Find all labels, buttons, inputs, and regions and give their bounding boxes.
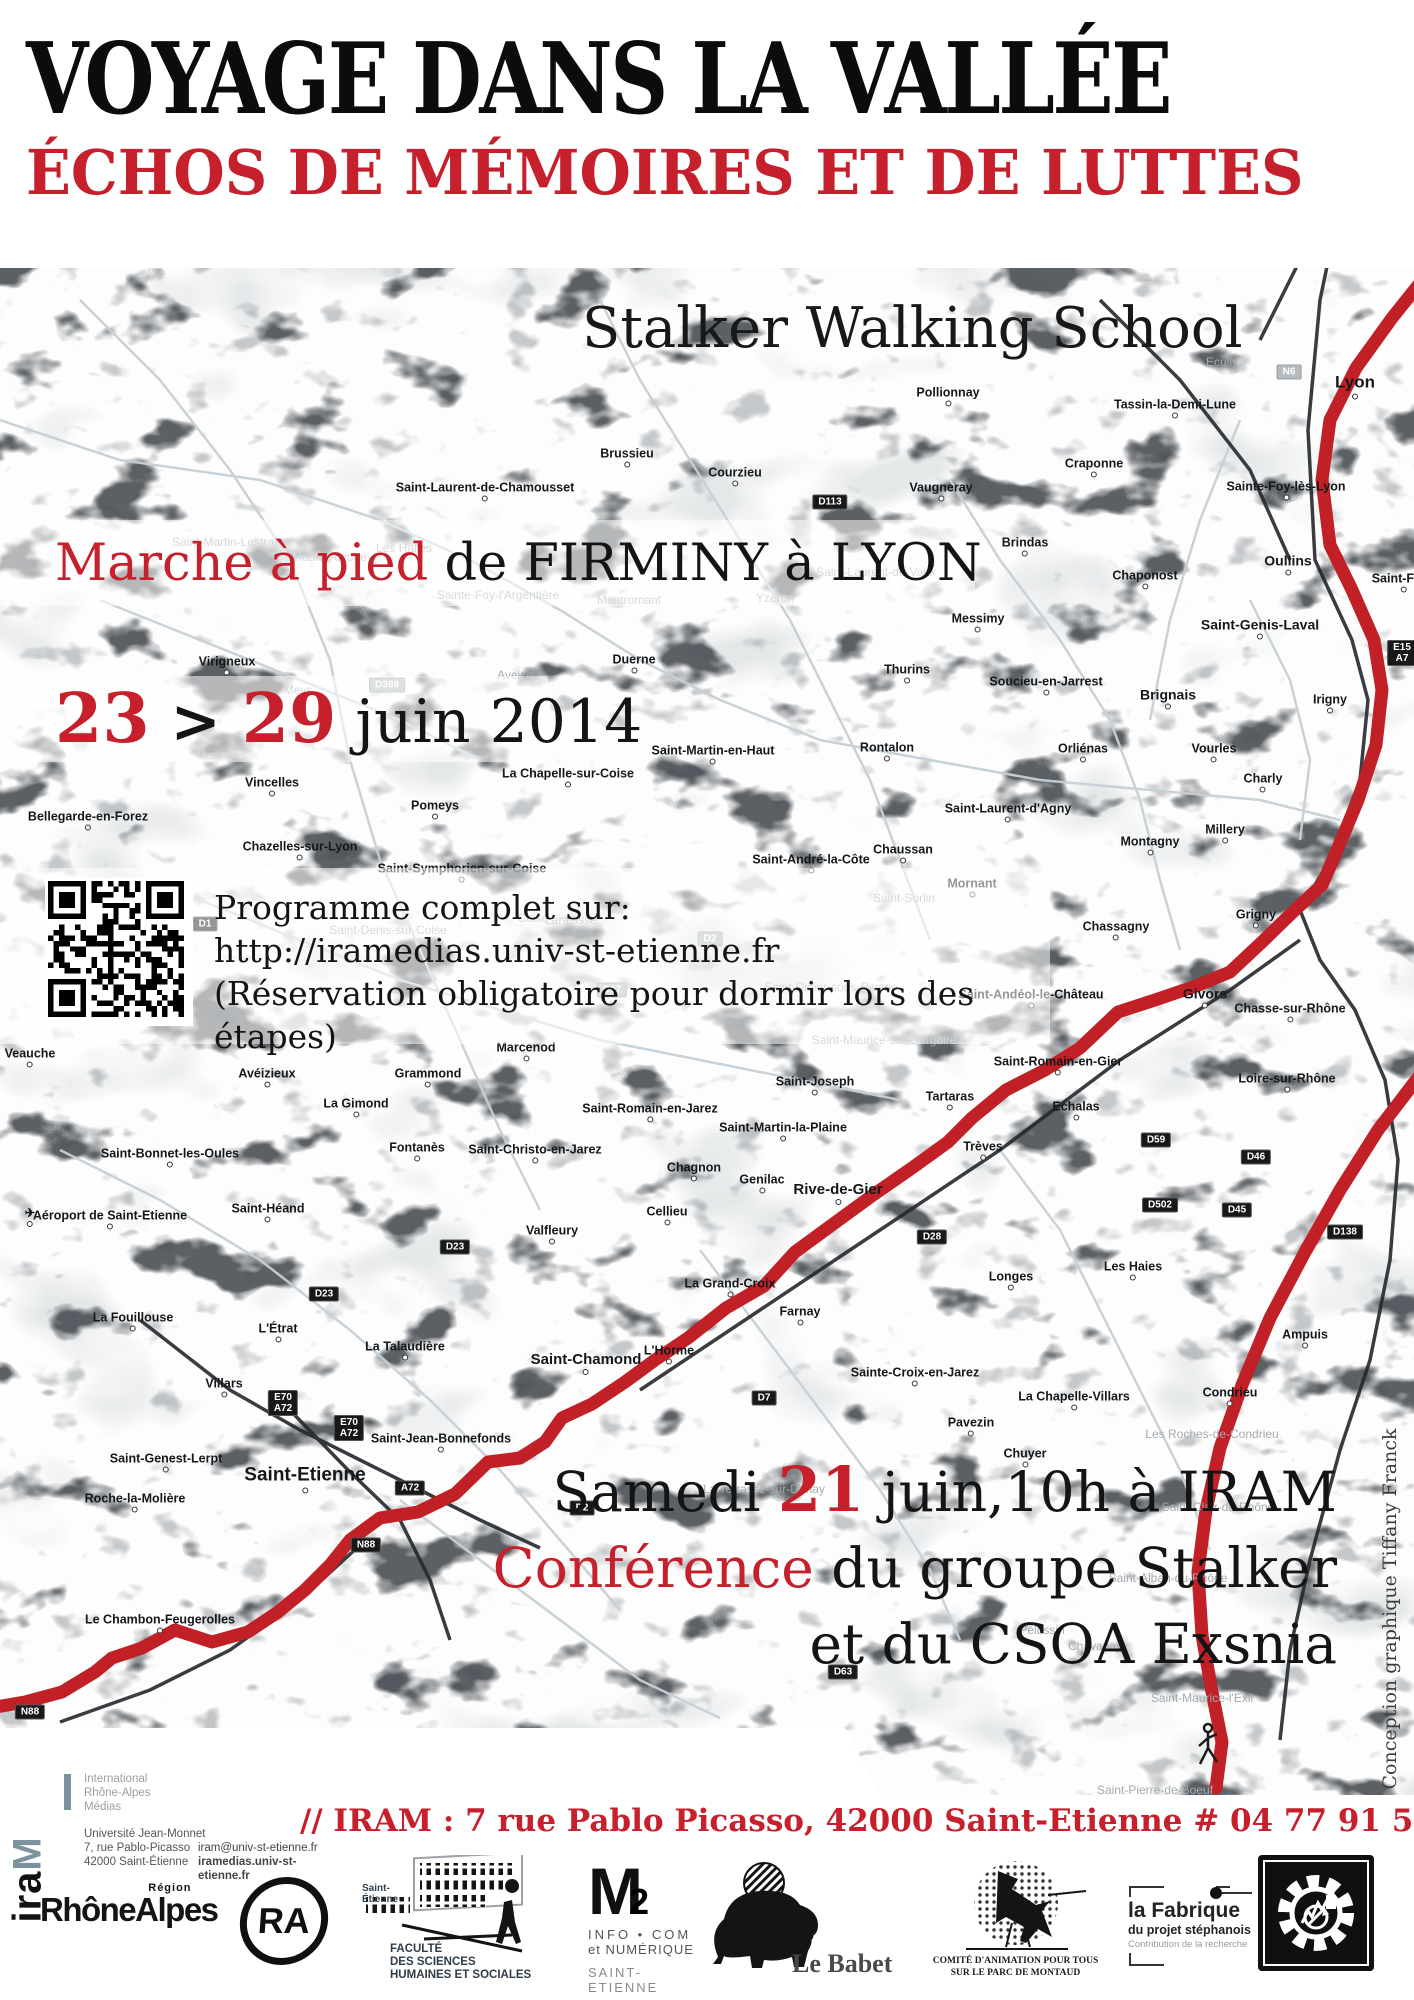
road-badge: N88 xyxy=(15,1705,45,1720)
iram-tagline: International Rhône-Alpes Médias xyxy=(84,1772,150,1814)
gear-icon xyxy=(1268,1865,1364,1961)
road-badge: D59 xyxy=(1141,1133,1171,1148)
town-label: Saint-Laurent-de-Chamousset xyxy=(396,481,575,502)
faculte-logo: Saint- Étienne FACULTÉ DES SCIENCES HUMA… xyxy=(362,1855,562,1987)
town-label: Genilac xyxy=(739,1173,784,1194)
town-label: Avéizieux xyxy=(238,1067,295,1088)
road-badge: N6 xyxy=(1277,365,1302,380)
town-label: Fontanès xyxy=(389,1141,445,1162)
conference-line2: Conférence du groupe Stalker xyxy=(477,1530,1337,1606)
town-label: Sainte-Croix-en-Jarez xyxy=(851,1366,980,1387)
town-label: Lyon xyxy=(1335,373,1375,400)
faculte-name: FACULTÉ DES SCIENCES HUMAINES ET SOCIALE… xyxy=(390,1943,531,1982)
dates-line: 23 > 29 juin 2014 xyxy=(0,676,548,762)
le-babet-logo: Le Babet xyxy=(700,1857,920,1983)
town-label: Saint-Joseph xyxy=(776,1075,855,1096)
town-label: Brussieu xyxy=(600,447,654,468)
town-label: Irigny xyxy=(1313,693,1347,714)
town-label: Givors xyxy=(1183,986,1227,1009)
town-label: Saint-Genest-Lerpt xyxy=(110,1452,223,1473)
town-label: La Grand-Croix xyxy=(685,1277,776,1298)
town-label: Saint-Romain-en-Jarez xyxy=(582,1102,717,1123)
footer: // IRAM : 7 rue Pablo Picasso, 42000 Sai… xyxy=(0,1795,1414,2000)
design-credit: Conception graphique Tiffany Franck xyxy=(1379,1423,1401,1795)
town-label: Brindas xyxy=(1002,536,1049,557)
town-label: Saint-Fons xyxy=(1372,572,1414,593)
road-badge: D23 xyxy=(309,1287,339,1302)
town-label: Chaponost xyxy=(1112,569,1177,590)
conference-day: 21 xyxy=(778,1453,864,1526)
town-label: Saint-Christo-en-Jarez xyxy=(468,1143,601,1164)
town-label: Condrieu xyxy=(1203,1386,1258,1407)
town-label: Longes xyxy=(989,1270,1033,1291)
program-url: http://iramedias.univ-st-etienne.fr xyxy=(214,929,1050,972)
town-label: Pollionnay xyxy=(916,386,979,407)
town-label: Les Haies xyxy=(1104,1260,1162,1281)
comite-montaud-label: COMITÉ D'ANIMATION POUR TOUS SUR LE PARC… xyxy=(928,1955,1103,1979)
road-badge: A72 xyxy=(395,1481,425,1496)
gear-logo xyxy=(1258,1855,1374,1971)
town-label: L'Horme xyxy=(644,1344,694,1365)
town-label: Courzieu xyxy=(708,466,761,487)
town-label: Craponne xyxy=(1065,457,1123,478)
road-badge: N88 xyxy=(351,1538,381,1553)
date-from: 23 xyxy=(55,679,150,759)
town-label: La Chapelle-sur-Coise xyxy=(502,767,634,788)
town-label: Saint-Chamond xyxy=(531,1351,642,1375)
le-babet-label: Le Babet xyxy=(792,1949,892,1979)
comite-montaud-logo: COMITÉ D'ANIMATION POUR TOUS SUR LE PARC… xyxy=(928,1857,1103,1985)
ra-circle-logo: RA xyxy=(237,1877,331,1965)
la-fabrique-logo: la Fabrique du projet stéphanois Contrib… xyxy=(1120,1883,1255,1973)
town-label: Veauche xyxy=(5,1047,56,1068)
poster: PollionnayTassin-la-Demi-LuneLyonCraponn… xyxy=(0,0,1414,2000)
town-label: Le Chambon-Feugerolles xyxy=(85,1613,235,1634)
road-badge: E70 A72 xyxy=(334,1415,364,1441)
date-to: 29 xyxy=(242,679,337,759)
town-label: Grigny xyxy=(1236,908,1276,929)
program-line1: Programme complet sur: xyxy=(214,886,1050,929)
program-note: (Réservation obligatoire pour dormir lor… xyxy=(214,972,1050,1058)
town-label: Chassagny xyxy=(1083,920,1150,941)
town-label: Chagnon xyxy=(667,1161,721,1182)
faculte-univ-label: Saint- Étienne xyxy=(362,1883,398,1905)
town-label: Les Roches-de-Condrieu xyxy=(1145,1427,1278,1441)
town-label: Brignais xyxy=(1140,687,1196,710)
road-badge: D502 xyxy=(1142,1198,1178,1213)
road-badge: D23 xyxy=(440,1240,470,1255)
town-label: Saint-Martin-en-Haut xyxy=(652,744,775,765)
date-separator: > xyxy=(150,687,242,757)
road-badge: D28 xyxy=(917,1230,947,1245)
poster-subtitle: ÉCHOS DE MÉMOIRES ET DE LUTTES xyxy=(26,136,1304,209)
town-label: Oullins xyxy=(1264,553,1311,576)
town-label: Orliénas xyxy=(1058,742,1108,763)
town-label: Saint-Maurice-l'Exil xyxy=(1151,1691,1253,1705)
road-badge: D7 xyxy=(752,1391,777,1406)
town-label: La Chapelle-Villars xyxy=(1018,1390,1130,1411)
town-label: Vincelles xyxy=(245,776,299,797)
town-label: Chazelles-sur-Lyon xyxy=(243,840,358,861)
town-label: Chasse-sur-Rhône xyxy=(1234,1002,1345,1023)
town-label: Rive-de-Gier xyxy=(793,1181,882,1205)
road-badge: D138 xyxy=(1327,1225,1363,1240)
town-label: Pomeys xyxy=(411,799,459,820)
town-label: Rontalon xyxy=(860,741,914,762)
town-label: Saint-Etienne xyxy=(244,1465,365,1494)
program-block: Programme complet sur: http://iramedias.… xyxy=(0,868,1050,1044)
town-label: Millery xyxy=(1205,823,1245,844)
town-label: Grammond xyxy=(395,1067,462,1088)
march-red: Marche à pied xyxy=(55,534,444,593)
town-label: Farnay xyxy=(780,1305,821,1326)
town-label: Pavezin xyxy=(948,1416,995,1437)
iram-logo-bar xyxy=(64,1774,71,1810)
town-label: Bellegarde-en-Forez xyxy=(28,810,148,831)
road-badge: E15 A7 xyxy=(1387,640,1414,666)
town-label: L'Étrat xyxy=(258,1322,297,1343)
town-label: Tartaras xyxy=(926,1090,974,1111)
town-label: La Gimond xyxy=(323,1097,388,1118)
town-label: Ecully xyxy=(1206,355,1238,369)
town-label: Villars xyxy=(205,1377,242,1398)
town-label: Roche-la-Molière xyxy=(85,1492,186,1513)
town-label: Cellieu xyxy=(647,1205,688,1226)
rhone-alpes-region-sup: Région xyxy=(148,1882,191,1894)
iram-email: iram@univ-st-etienne.fr xyxy=(198,1841,330,1855)
partner-logos-row: RhôneAlpes Région RA S xyxy=(0,1855,1414,1995)
date-rest: juin 2014 xyxy=(336,687,642,757)
town-label: Messimy xyxy=(952,612,1005,633)
town-label: Charly xyxy=(1244,772,1283,793)
march-black: de FIRMINY à LYON xyxy=(444,534,981,593)
road-badge: D45 xyxy=(1222,1203,1252,1218)
town-label: Soucieu-en-Jarrest xyxy=(989,675,1102,696)
town-label: Duerne xyxy=(612,653,655,674)
m2-info-com-logo: M2 INFO • COM et NUMÉRIQUE SAINT-ETIENNE xyxy=(588,1863,708,1995)
road-badge: D46 xyxy=(1241,1150,1271,1165)
town-label: Saint-Héand xyxy=(232,1202,305,1223)
town-label: Saint-Martin-la-Plaine xyxy=(719,1121,847,1142)
conference-line3: et du CSOA Exsnia xyxy=(477,1606,1337,1682)
town-label: Montagny xyxy=(1120,835,1179,856)
town-label: Virigneux xyxy=(199,655,256,676)
town-label: Saint-Jean-Bonnefonds xyxy=(371,1432,511,1453)
town-label: Loire-sur-Rhône xyxy=(1238,1072,1335,1093)
town-label: Chaussan xyxy=(873,843,933,864)
town-label: Echalas xyxy=(1052,1100,1099,1121)
town-label: La Fouillouse xyxy=(93,1311,174,1332)
march-line: Marche à pied de FIRMINY à LYON xyxy=(0,520,975,606)
walking-school-line: Stalker Walking School xyxy=(582,296,1243,361)
town-label: Thurins xyxy=(884,663,930,684)
town-label: Trèves xyxy=(963,1140,1003,1161)
town-label: Ampuis xyxy=(1282,1328,1328,1349)
qr-code xyxy=(45,878,193,1026)
town-label: Saint-Laurent-d'Agny xyxy=(945,802,1072,823)
town-label: Aéroport de Saint-Etienne xyxy=(33,1209,187,1230)
town-label: Valfleury xyxy=(526,1224,578,1245)
town-label: Saint-Genis-Laval xyxy=(1201,617,1319,640)
road-badge: D113 xyxy=(812,495,847,510)
road-badge: E70 A72 xyxy=(268,1390,298,1416)
town-label: Vourles xyxy=(1192,742,1237,763)
conference-block: Samedi 21 juin,10h à IRAM Conférence du … xyxy=(477,1452,1337,1682)
poster-title: VOYAGE DANS LA VALLÉE xyxy=(26,22,1170,137)
town-label: Saint-Bonnet-les-Oules xyxy=(101,1147,239,1168)
conference-line1: Samedi 21 juin,10h à IRAM xyxy=(477,1452,1337,1530)
town-label: Tassin-la-Demi-Lune xyxy=(1114,398,1236,419)
iram-address-bar: // IRAM : 7 rue Pablo Picasso, 42000 Sai… xyxy=(300,1803,1410,1839)
town-label: Vaugneray xyxy=(909,481,972,502)
town-label: Sainte-Foy-lès-Lyon xyxy=(1227,480,1346,501)
town-label: La Talaudière xyxy=(365,1340,445,1361)
rhone-alpes-logo: RhôneAlpes Région xyxy=(40,1891,218,1929)
